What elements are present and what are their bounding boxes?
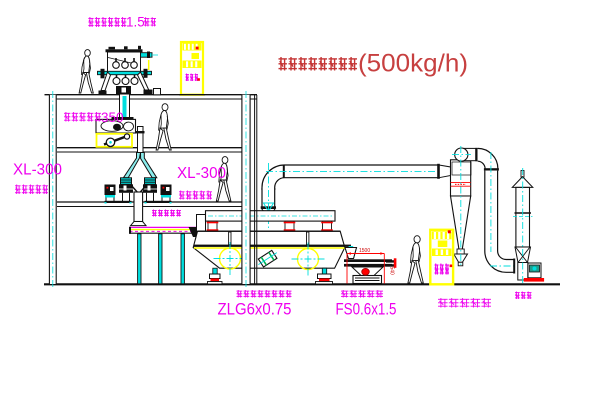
svg-text:350: 350	[101, 110, 124, 125]
svg-text:XL-300: XL-300	[177, 165, 226, 182]
svg-text:1.5: 1.5	[126, 15, 145, 30]
svg-text:540: 540	[389, 267, 395, 276]
svg-text:1500: 1500	[359, 248, 370, 254]
svg-text:FS0.6x1.5: FS0.6x1.5	[336, 301, 397, 319]
svg-text:(500kg/h): (500kg/h)	[358, 50, 468, 78]
svg-text:ZLG6x0.75: ZLG6x0.75	[218, 301, 292, 319]
svg-text:XL-300: XL-300	[13, 162, 62, 179]
